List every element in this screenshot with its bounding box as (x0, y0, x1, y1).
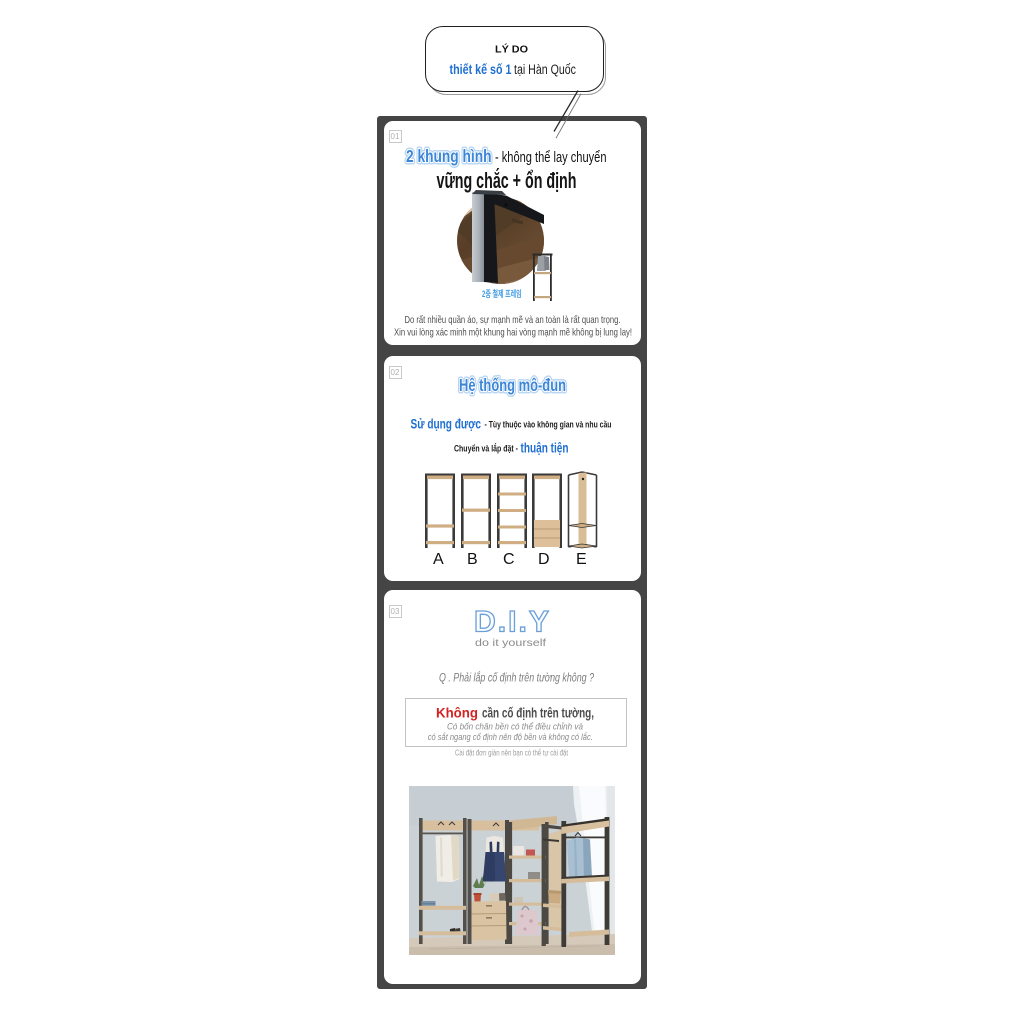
svg-text:Hệ thống mô-đun: Hệ thống mô-đun (459, 375, 566, 395)
svg-text:Có bốn chân bền có thể điều ch: Có bốn chân bền có thể điều chỉnh và (447, 721, 583, 731)
svg-text:Không: Không (436, 705, 478, 720)
svg-text:- Tùy thuộc vào không gian và: - Tùy thuộc vào không gian và nhu cầu (484, 420, 611, 431)
svg-text:Do rất nhiều quần áo, sự mạnh: Do rất nhiều quần áo, sự mạnh mẽ và an t… (404, 314, 620, 326)
svg-text:2 khung hình: 2 khung hình (406, 146, 492, 166)
svg-text:có sắt ngang cố định nên độ bề: có sắt ngang cố định nên độ bền và không… (428, 732, 593, 742)
svg-text:thiết kế số 1: thiết kế số 1 (450, 62, 512, 77)
svg-text:Xin vui lòng xác minh một khun: Xin vui lòng xác minh một khung hai vòng… (394, 327, 632, 339)
svg-text:thuận tiện: thuận tiện (520, 441, 568, 456)
svg-text:Sử dụng được: Sử dụng được (410, 417, 481, 432)
svg-text:D.I.Y: D.I.Y (474, 606, 551, 639)
svg-text:cần cố định trên tường,: cần cố định trên tường, (482, 705, 594, 720)
svg-text:- không thể lay chuyển: - không thể lay chuyển (495, 150, 607, 166)
svg-text:do it yourself: do it yourself (475, 637, 546, 649)
svg-text:tại Hàn Quốc: tại Hàn Quốc (514, 62, 576, 77)
svg-text:Q . Phải lắp cố định trên tườn: Q . Phải lắp cố định trên tường không ? (439, 670, 594, 685)
svg-text:Cài đặt đơn giản nên bạn có th: Cài đặt đơn giản nên bạn có thể tự cài đ… (455, 748, 569, 757)
svg-text:2중 철제 프레임: 2중 철제 프레임 (482, 288, 522, 300)
svg-text:LÝ DO: LÝ DO (495, 43, 528, 56)
svg-text:Chuyển và lắp đặt -: Chuyển và lắp đặt - (454, 443, 518, 455)
